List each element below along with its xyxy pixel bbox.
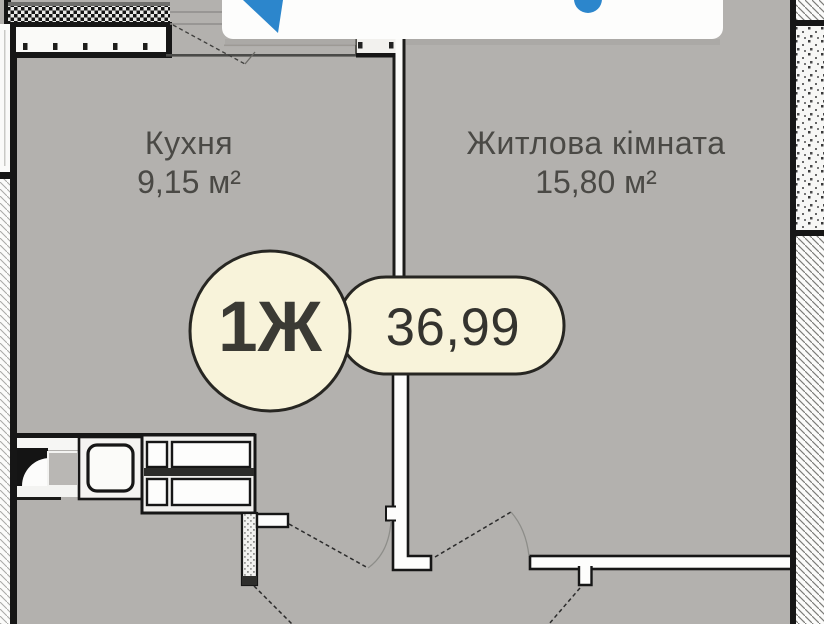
svg-text:Житлова кімната: Житлова кімната <box>467 125 726 161</box>
svg-text:Кухня: Кухня <box>145 125 233 161</box>
svg-text:9,15 м²: 9,15 м² <box>137 164 241 200</box>
svg-text:1Ж: 1Ж <box>218 288 322 367</box>
svg-text:15,80 м²: 15,80 м² <box>535 164 657 200</box>
svg-text:36,99: 36,99 <box>386 298 520 357</box>
